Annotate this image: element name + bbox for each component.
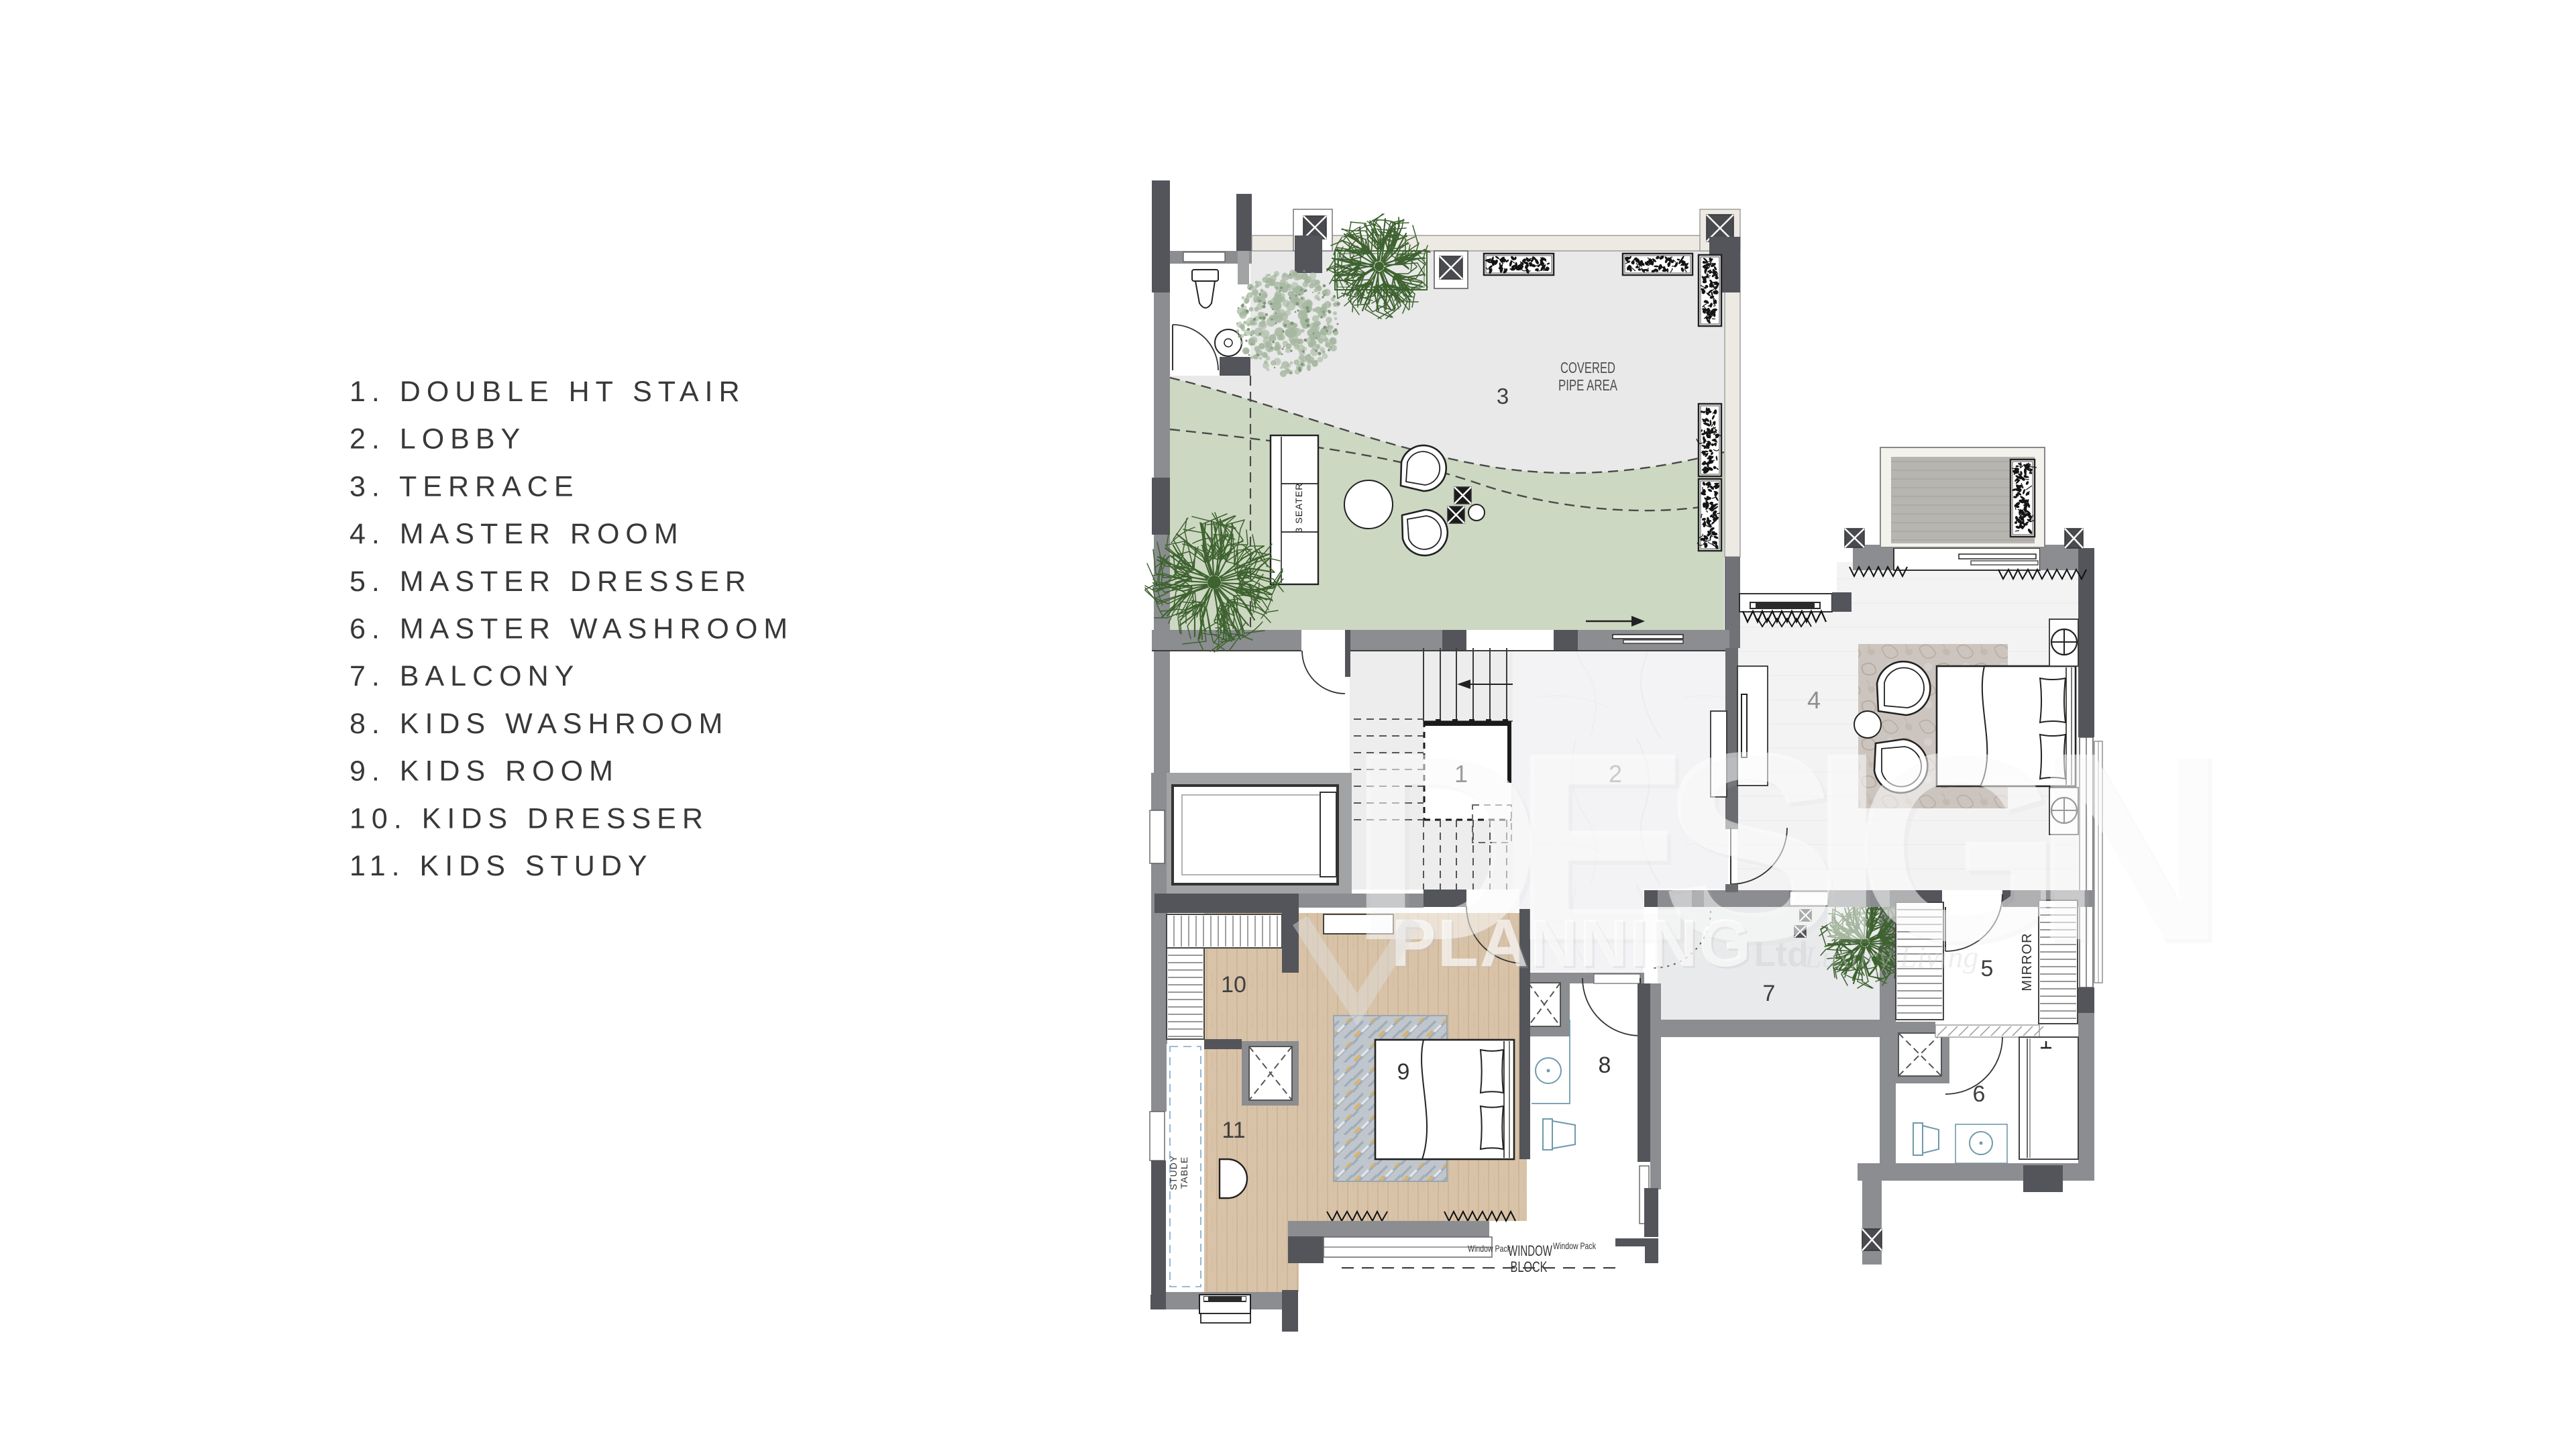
svg-text:PIPE AREA: PIPE AREA: [1558, 376, 1617, 394]
svg-text:3 SEATER: 3 SEATER: [1293, 483, 1304, 533]
svg-text:4. MASTER ROOM: 4. MASTER ROOM: [350, 518, 684, 550]
svg-text:TABLE: TABLE: [1179, 1157, 1189, 1189]
svg-text:BLOCK: BLOCK: [1511, 1258, 1548, 1275]
svg-text:8: 8: [1599, 1053, 1611, 1078]
svg-text:10. KIDS DRESSER: 10. KIDS DRESSER: [350, 802, 709, 835]
svg-text:Luxury Living: Luxury Living: [1804, 940, 1978, 974]
svg-text:7. BALCONY: 7. BALCONY: [350, 660, 580, 692]
svg-text:WINDOW: WINDOW: [1508, 1242, 1552, 1259]
svg-text:3. TERRACE: 3. TERRACE: [350, 470, 580, 502]
svg-text:Window Pack: Window Pack: [1553, 1240, 1597, 1251]
svg-text:Ltd: Ltd: [1754, 935, 1809, 974]
svg-text:9: 9: [1397, 1059, 1410, 1085]
svg-text:11: 11: [1222, 1118, 1245, 1143]
svg-text:9. KIDS ROOM: 9. KIDS ROOM: [350, 755, 619, 788]
svg-text:COVERED: COVERED: [1560, 359, 1615, 376]
svg-text:11. KIDS STUDY: 11. KIDS STUDY: [350, 850, 653, 882]
svg-text:1. DOUBLE HT STAIR: 1. DOUBLE HT STAIR: [350, 376, 746, 408]
svg-text:10: 10: [1221, 972, 1246, 998]
svg-text:STUDY: STUDY: [1168, 1155, 1179, 1190]
svg-text:6: 6: [1973, 1081, 1986, 1107]
svg-text:8. KIDS WASHROOM: 8. KIDS WASHROOM: [350, 708, 729, 740]
svg-text:5. MASTER DRESSER: 5. MASTER DRESSER: [350, 566, 752, 598]
svg-text:6. MASTER WASHROOM: 6. MASTER WASHROOM: [350, 613, 794, 645]
svg-text:Window Pack: Window Pack: [1468, 1243, 1511, 1254]
svg-text:PLANNING: PLANNING: [1391, 906, 1752, 981]
svg-text:3: 3: [1497, 384, 1509, 409]
svg-text:2. LOBBY: 2. LOBBY: [350, 423, 526, 455]
